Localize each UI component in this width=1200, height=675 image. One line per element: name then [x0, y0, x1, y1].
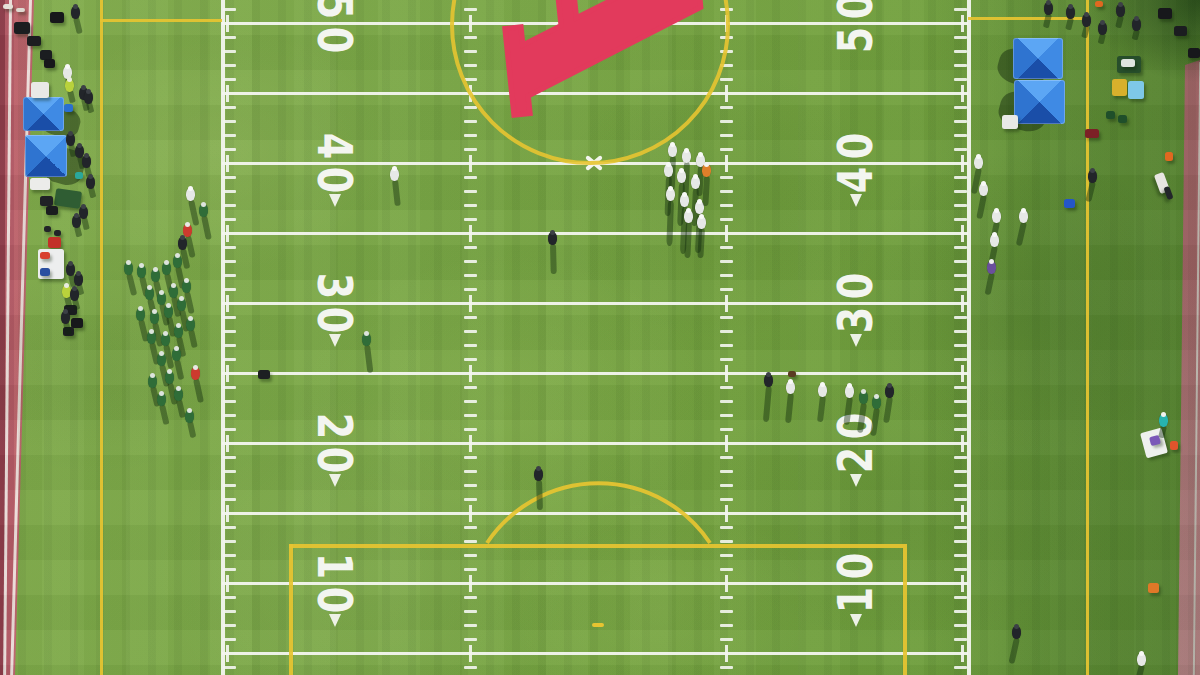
person-head [64, 283, 69, 288]
yard-line-cross-tick [725, 155, 728, 172]
person-shadow [536, 480, 542, 510]
person-head [699, 214, 704, 219]
person-figure [1088, 170, 1097, 183]
penalty-box-left [289, 544, 293, 675]
equipment-object [1106, 111, 1115, 119]
person-head [392, 166, 397, 171]
person-head [138, 306, 143, 311]
person-shadow [159, 404, 169, 425]
person-figure [186, 188, 195, 201]
person-shadow [176, 336, 186, 357]
hash-tick [464, 470, 477, 473]
hash-tick [720, 316, 733, 319]
person-shadow [64, 296, 72, 307]
hash-tick [954, 540, 967, 543]
hash-tick [720, 386, 733, 389]
person-shadow [149, 342, 159, 365]
hash-tick [954, 218, 967, 221]
person-figure [172, 348, 181, 361]
yard-number-glyph: 0 [832, 273, 879, 299]
person-head [679, 168, 684, 173]
person-head [68, 261, 73, 266]
hash-tick [464, 386, 477, 389]
hash-tick [954, 554, 967, 557]
yard-line-cross-tick [961, 435, 964, 452]
person-shadow [987, 245, 997, 268]
person-head [81, 204, 86, 209]
person-figure [764, 374, 773, 387]
yard-line-cross-tick [226, 225, 229, 242]
hash-tick [954, 498, 967, 501]
person-head [153, 267, 158, 272]
tent-shadow [995, 88, 1051, 137]
person-figure [61, 311, 70, 324]
sideline-left [221, 0, 225, 675]
hash-tick [720, 344, 733, 347]
person-figure [124, 262, 133, 275]
hash-tick [223, 330, 236, 333]
hash-tick [720, 638, 733, 641]
yard-line-cross-tick [961, 155, 964, 172]
yard-line-cross-tick [961, 645, 964, 662]
person-shadow [1115, 15, 1123, 28]
person-shadow [1135, 664, 1144, 675]
person-figure [668, 144, 677, 157]
hash-tick [223, 400, 236, 403]
person-figure [147, 331, 156, 344]
person-head [1068, 4, 1073, 9]
person-head [63, 309, 68, 314]
hash-tick [720, 330, 733, 333]
person-figure [161, 333, 170, 346]
yard-line-cross-tick [725, 365, 728, 382]
person-head [174, 346, 179, 351]
person-figure [677, 170, 686, 183]
person-head [992, 232, 997, 237]
person-shadow [201, 215, 211, 240]
center-x-mark [585, 155, 603, 171]
person-shadow [684, 222, 691, 258]
equipment-object [788, 371, 796, 377]
person-figure [150, 311, 159, 324]
equipment-object [40, 50, 52, 60]
hash-tick [954, 288, 967, 291]
hash-tick [223, 316, 236, 319]
person-figure [664, 164, 673, 177]
yard-line-cross-tick [469, 295, 472, 312]
person-head [698, 152, 703, 157]
person-head [166, 303, 171, 308]
person-head [550, 230, 555, 235]
person-figure [1012, 626, 1021, 639]
person-shadow [785, 393, 793, 423]
equipment-object [1095, 1, 1103, 7]
person-head [887, 383, 892, 388]
person-head [86, 89, 91, 94]
person-shadow [1015, 221, 1026, 246]
person-head [84, 153, 89, 158]
equipment-object [75, 172, 83, 179]
yard-number-glyph: 2 [832, 447, 879, 473]
person-shadow [81, 217, 89, 230]
person-head [176, 386, 181, 391]
person-figure [178, 237, 187, 250]
equipment-object [38, 249, 64, 279]
person-figure [72, 215, 81, 228]
person-figure [63, 66, 72, 79]
person-head [73, 4, 78, 9]
hash-tick [223, 288, 236, 291]
equipment-object [1154, 172, 1170, 194]
person-shadow [171, 296, 181, 317]
sideline-right [967, 0, 971, 675]
yard-line-cross-tick [469, 225, 472, 242]
person-head [159, 351, 164, 356]
person-shadow [668, 156, 675, 190]
penalty-box-top [289, 544, 903, 548]
yard-number-glyph: 0 [832, 133, 879, 159]
yard-line [222, 372, 968, 375]
person-shadow [970, 167, 981, 194]
hash-tick [720, 456, 733, 459]
person-head [1161, 412, 1166, 417]
soccer-touchline-left [100, 0, 103, 675]
hash-tick [954, 526, 967, 529]
yard-number-glyph: 0 [832, 0, 879, 19]
person-shadow [691, 188, 698, 226]
hash-tick [223, 50, 236, 53]
aerial-football-field-photo: 50054004300320021001 A [0, 0, 1200, 675]
person-head [686, 208, 691, 213]
goal-direction-arrow [850, 194, 862, 207]
person-head [139, 263, 144, 268]
person-figure [174, 388, 183, 401]
person-head [65, 64, 70, 69]
person-head [994, 208, 999, 213]
yard-number-glyph: 0 [311, 27, 358, 53]
person-head [976, 154, 981, 159]
person-shadow [76, 284, 84, 295]
hash-tick [954, 246, 967, 249]
person-figure [691, 176, 700, 189]
person-shadow [185, 235, 195, 258]
goal-direction-arrow [329, 614, 341, 627]
hash-tick [720, 624, 733, 627]
person-figure [1066, 6, 1075, 19]
yard-line-cross-tick [469, 645, 472, 662]
person-shadow [166, 316, 176, 337]
hash-tick [464, 624, 477, 627]
yard-number-glyph: 2 [311, 413, 358, 439]
person-figure [1098, 22, 1107, 35]
hash-tick [223, 260, 236, 263]
person-head [874, 394, 879, 399]
person-head [670, 142, 675, 147]
hash-tick [720, 596, 733, 599]
hash-tick [223, 176, 236, 179]
hash-tick [720, 470, 733, 473]
hash-tick [223, 78, 236, 81]
hash-tick [464, 134, 477, 137]
hash-tick [954, 428, 967, 431]
yard-line [222, 442, 968, 445]
hash-tick [464, 274, 477, 277]
hash-tick [954, 470, 967, 473]
person-shadow [159, 303, 169, 326]
hash-tick [954, 64, 967, 67]
goal-direction-arrow [850, 614, 862, 627]
hash-tick [954, 456, 967, 459]
hash-tick [954, 204, 967, 207]
person-figure [872, 396, 881, 409]
person-shadow [63, 322, 71, 335]
hash-tick [223, 568, 236, 571]
yard-line-cross-tick [469, 435, 472, 452]
penalty-box-right [903, 544, 907, 675]
yard-line-cross-tick [961, 505, 964, 522]
hash-tick [720, 540, 733, 543]
person-head [668, 186, 673, 191]
person-shadow [188, 329, 197, 348]
hash-tick [720, 260, 733, 263]
yard-line-cross-tick [725, 225, 728, 242]
person-head [201, 202, 206, 207]
person-figure [974, 156, 983, 169]
person-head [74, 213, 79, 218]
person-head [184, 278, 189, 283]
tent-shadow [994, 45, 1049, 91]
hash-tick [223, 190, 236, 193]
person-shadow [153, 280, 163, 303]
equipment-object [44, 226, 51, 232]
person-head [1100, 20, 1105, 25]
equipment-object [1121, 59, 1135, 67]
yard-number-glyph: 4 [311, 133, 358, 159]
hash-tick [954, 120, 967, 123]
hash-tick [720, 610, 733, 613]
hash-tick [720, 414, 733, 417]
hash-tick [223, 246, 236, 249]
hash-tick [720, 428, 733, 431]
hash-tick [720, 568, 733, 571]
person-shadow [86, 102, 94, 113]
running-track-right [1150, 0, 1200, 675]
hash-tick [954, 596, 967, 599]
hash-tick [223, 358, 236, 361]
person-shadow [152, 322, 163, 347]
person-head [1134, 16, 1139, 21]
person-head [536, 466, 541, 471]
person-figure [145, 287, 154, 300]
hash-tick [720, 204, 733, 207]
yard-line-cross-tick [469, 365, 472, 382]
person-figure [66, 133, 75, 146]
person-figure [818, 384, 827, 397]
person-shadow [184, 291, 194, 314]
person-shadow [81, 98, 89, 111]
hash-tick [954, 638, 967, 641]
equipment-object [71, 318, 83, 328]
person-shadow [163, 344, 174, 369]
hash-tick [464, 218, 477, 221]
equipment-object [1118, 115, 1127, 123]
equipment-object [1064, 199, 1075, 208]
hash-tick [720, 666, 733, 669]
person-head [704, 162, 709, 167]
hash-tick [464, 540, 477, 543]
canopy-tent [25, 135, 67, 177]
yard-number-glyph: 0 [832, 413, 879, 439]
person-head [180, 235, 185, 240]
equipment-object [1149, 435, 1161, 446]
hash-tick [464, 120, 477, 123]
yard-line [222, 582, 968, 585]
person-figure [390, 168, 399, 181]
yard-line-cross-tick [961, 575, 964, 592]
person-head [697, 199, 702, 204]
yard-number-glyph: 0 [832, 553, 879, 579]
person-head [682, 192, 687, 197]
person-head [175, 253, 180, 258]
canopy-tent [1014, 80, 1065, 124]
person-figure [177, 298, 186, 311]
person-figure [157, 393, 166, 406]
equipment-object [1002, 115, 1018, 129]
hash-tick [223, 274, 236, 277]
person-shadow [67, 90, 75, 103]
yard-line-cross-tick [469, 575, 472, 592]
person-head [179, 296, 184, 301]
hash-tick [720, 358, 733, 361]
person-shadow [187, 421, 196, 438]
hash-tick [223, 106, 236, 109]
equipment-object [44, 59, 55, 68]
person-shadow [73, 17, 82, 34]
hash-tick [720, 274, 733, 277]
yard-line-cross-tick [961, 365, 964, 382]
yard-number-glyph: 0 [311, 587, 358, 613]
person-figure [148, 375, 157, 388]
person-head [981, 181, 986, 186]
hash-tick [954, 400, 967, 403]
hash-tick [464, 148, 477, 151]
person-head [1084, 12, 1089, 17]
hash-tick [223, 610, 236, 613]
hash-tick [954, 316, 967, 319]
person-figure [362, 333, 371, 346]
track-inner-edge-line [10, 0, 32, 675]
hash-tick [720, 106, 733, 109]
hash-tick [223, 8, 236, 11]
tent-shadow [38, 103, 83, 141]
person-figure [1137, 653, 1146, 666]
person-head [159, 391, 164, 396]
person-figure [74, 273, 83, 286]
hash-tick [720, 190, 733, 193]
person-shadow [843, 397, 852, 425]
person-head [67, 77, 72, 82]
person-head [171, 283, 176, 288]
center-x-mark [585, 155, 603, 171]
person-figure [164, 305, 173, 318]
hash-tick [954, 610, 967, 613]
hash-tick [464, 568, 477, 571]
equipment-object [1085, 129, 1099, 138]
person-figure [182, 280, 191, 293]
yard-line-cross-tick [226, 365, 229, 382]
yard-line [222, 232, 968, 235]
hash-tick [720, 120, 733, 123]
person-head [364, 331, 369, 336]
person-shadow [179, 309, 189, 332]
hash-tick [464, 246, 477, 249]
person-figure [680, 194, 689, 207]
yard-line-cross-tick [725, 505, 728, 522]
hash-tick [223, 36, 236, 39]
hash-tick [223, 386, 236, 389]
person-shadow [1158, 425, 1166, 438]
person-shadow [68, 144, 76, 157]
person-figure [79, 87, 88, 100]
hash-tick [954, 666, 967, 669]
hash-tick [464, 498, 477, 501]
yard-line [222, 162, 968, 165]
hash-tick [720, 176, 733, 179]
hash-tick [223, 414, 236, 417]
person-shadow [188, 199, 199, 226]
person-shadow [762, 386, 771, 422]
person-shadow [697, 228, 704, 258]
equipment-object [31, 82, 49, 98]
person-figure [151, 269, 160, 282]
equipment-object [40, 252, 50, 259]
hash-tick [720, 288, 733, 291]
yard-line-cross-tick [725, 295, 728, 312]
person-shadow [88, 187, 96, 198]
person-shadow [139, 276, 149, 297]
person-head [666, 162, 671, 167]
person-shadow [1081, 25, 1089, 38]
person-figure [186, 318, 195, 331]
hash-tick [464, 260, 477, 263]
person-figure [162, 262, 171, 275]
person-figure [157, 353, 166, 366]
person-figure [137, 265, 146, 278]
hash-tick [954, 414, 967, 417]
person-shadow [682, 162, 689, 198]
person-shadow [164, 273, 174, 294]
person-head [167, 369, 172, 374]
hash-tick [720, 134, 733, 137]
equipment-object [1148, 583, 1159, 593]
hash-tick [954, 190, 967, 193]
yard-number-glyph: 5 [832, 27, 879, 53]
yard-line-cross-tick [469, 505, 472, 522]
hash-tick [223, 638, 236, 641]
hash-tick [464, 456, 477, 459]
hash-tick [954, 274, 967, 277]
person-figure [70, 288, 79, 301]
hash-tick [464, 596, 477, 599]
hash-tick [954, 50, 967, 53]
hash-tick [720, 554, 733, 557]
person-head [1090, 168, 1095, 173]
person-figure [183, 224, 192, 237]
hash-tick [464, 190, 477, 193]
hash-tick [223, 64, 236, 67]
person-shadow [176, 399, 185, 418]
tent-shadow [40, 143, 88, 188]
